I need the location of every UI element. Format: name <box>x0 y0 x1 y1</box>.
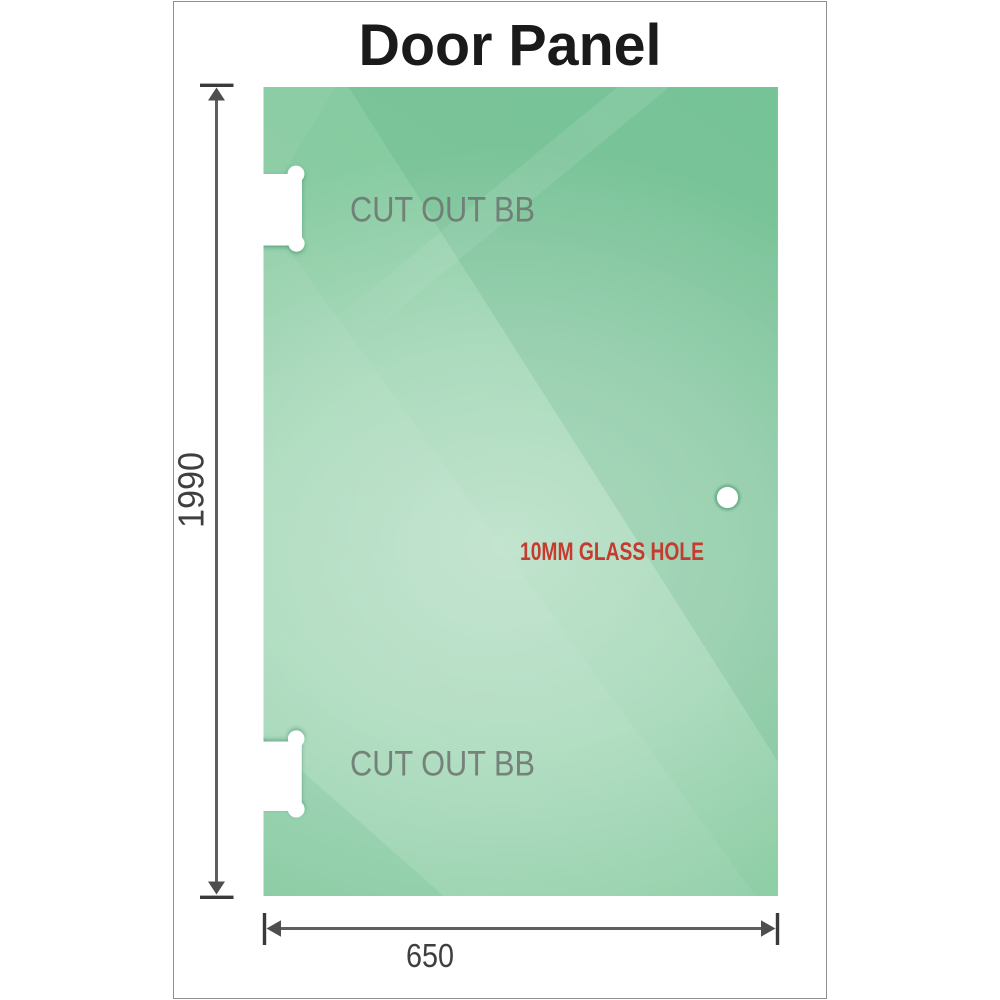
svg-text:CUT OUT BB: CUT OUT BB <box>350 745 535 784</box>
svg-text:Door Panel: Door Panel <box>359 13 662 78</box>
svg-text:CUT OUT BB: CUT OUT BB <box>350 191 535 230</box>
svg-text:650: 650 <box>406 937 454 974</box>
svg-text:1990: 1990 <box>171 452 212 528</box>
svg-text:10MM GLASS HOLE: 10MM GLASS HOLE <box>520 538 704 566</box>
